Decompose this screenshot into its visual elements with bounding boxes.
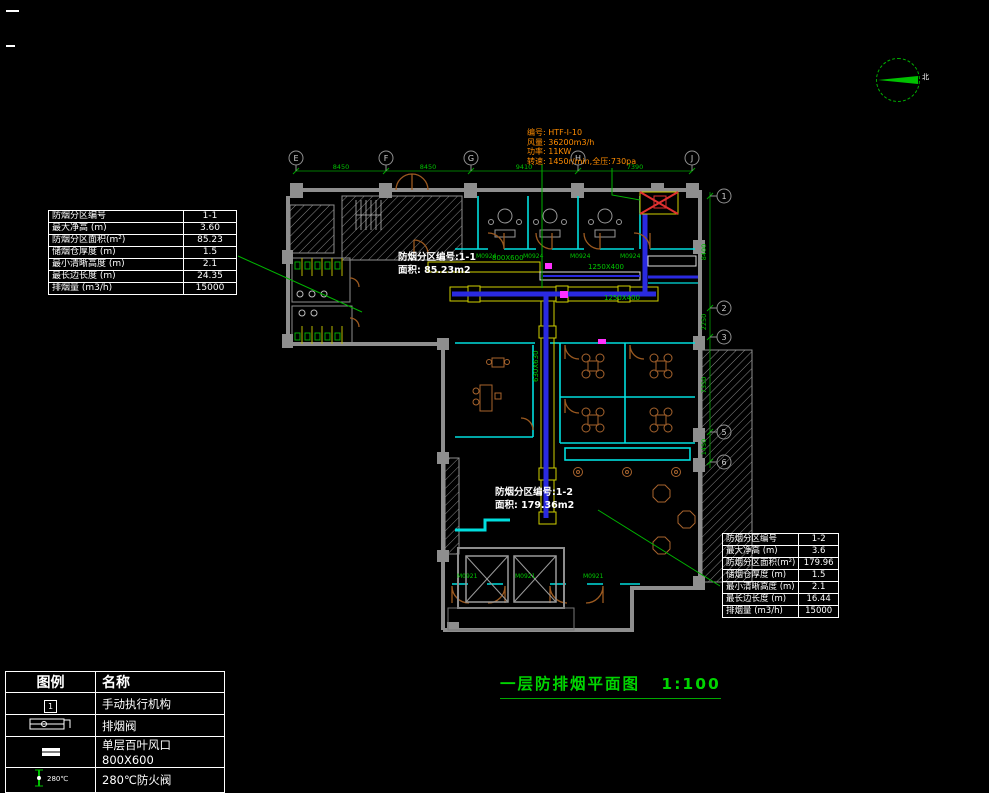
manual-actuator-icon: 1 bbox=[44, 700, 57, 713]
title-scale: 1:100 bbox=[661, 675, 720, 693]
cad-canvas[interactable]: 800X600 1250X400 1250X400 630X630 M0924 … bbox=[0, 0, 989, 770]
cad-viewport[interactable]: { "meta": { "title": "一层防排烟平面图", "scale"… bbox=[0, 0, 989, 770]
fan-power: 功率: 11KW bbox=[527, 147, 636, 157]
grid-top: E F G H J 8450 8450 9410 7390 bbox=[289, 151, 699, 174]
svg-text:8450: 8450 bbox=[333, 163, 350, 171]
table-row: 最长边长度 (m)16.44 bbox=[723, 594, 839, 606]
corner-marks bbox=[6, 11, 19, 46]
table-row: 最长边长度 (m)24.35 bbox=[49, 271, 237, 283]
legend-row: 280℃ 280℃防火阀 bbox=[6, 768, 225, 793]
svg-text:8400: 8400 bbox=[700, 244, 708, 261]
north-arrow-icon bbox=[878, 72, 920, 88]
svg-text:F: F bbox=[384, 154, 389, 163]
svg-text:6: 6 bbox=[721, 458, 726, 467]
svg-text:7350: 7350 bbox=[700, 377, 708, 394]
table-row: 储烟仓厚度 (m)1.5 bbox=[49, 247, 237, 259]
legend-table: 图例 名称 1 手动执行机构 排烟阀 bbox=[5, 671, 225, 793]
table-row: 最小清晰高度 (m)2.1 bbox=[723, 582, 839, 594]
svg-text:G: G bbox=[468, 154, 474, 163]
ktv-furniture bbox=[489, 209, 622, 237]
svg-text:M0924: M0924 bbox=[620, 253, 641, 260]
legend-row: 1 手动执行机构 bbox=[6, 693, 225, 715]
svg-text:J: J bbox=[690, 154, 693, 163]
smoke-exhaust-valve-icon bbox=[28, 717, 74, 731]
smoke-zone-1-2-table: 防烟分区编号1-2 最大净高 (m)3.6 防烟分区面积(m²)179.96 储… bbox=[722, 533, 839, 618]
svg-text:8450: 8450 bbox=[420, 163, 437, 171]
zone-1-1-note: 防烟分区编号:1-1 面积: 85.23m2 bbox=[398, 251, 476, 277]
louver-outlet-icon bbox=[40, 746, 62, 758]
svg-text:M0921: M0921 bbox=[583, 573, 604, 580]
table-row: 储烟仓厚度 (m)1.5 bbox=[723, 570, 839, 582]
smoke-zone-1-1-table: 防烟分区编号1-1 最大净高 (m)3.60 防烟分区面积(m²)85.23 储… bbox=[48, 210, 237, 295]
exhaust-fan-unit bbox=[640, 192, 678, 214]
legend-header-row: 图例 名称 bbox=[6, 672, 225, 693]
legend-header-name: 名称 bbox=[96, 672, 225, 693]
dining-furniture bbox=[473, 354, 695, 554]
legend-row: 单层百叶风口800X600 bbox=[6, 737, 225, 768]
legend-header-symbol: 图例 bbox=[6, 672, 96, 693]
drawing-title: 一层防排烟平面图 1:100 bbox=[500, 672, 721, 699]
svg-text:E: E bbox=[293, 154, 298, 163]
table-row: 最小清晰高度 (m)2.1 bbox=[49, 259, 237, 271]
fan-speed-pressure: 转速: 1450r/min,全压:730pa bbox=[527, 157, 636, 167]
fan-id: 编号: HTF-I-10 bbox=[527, 128, 636, 138]
elevators bbox=[448, 548, 574, 630]
svg-text:280℃: 280℃ bbox=[47, 775, 68, 783]
svg-text:2250: 2250 bbox=[700, 314, 708, 331]
svg-text:M0924: M0924 bbox=[523, 253, 544, 260]
north-label: 北 bbox=[922, 72, 929, 82]
toilet-block-a bbox=[292, 258, 350, 302]
svg-text:1: 1 bbox=[721, 192, 726, 201]
svg-text:1250X400: 1250X400 bbox=[588, 263, 624, 271]
table-row: 防烟分区编号1-1 bbox=[49, 211, 237, 223]
table-row: 最大净高 (m)3.60 bbox=[49, 223, 237, 235]
fan-airflow: 风量: 36200m3/h bbox=[527, 138, 636, 148]
table-row: 排烟量 (m3/h)15000 bbox=[49, 283, 237, 295]
svg-text:800X600: 800X600 bbox=[492, 254, 524, 262]
north-compass: 北 bbox=[876, 58, 920, 102]
svg-text:M0924: M0924 bbox=[476, 253, 497, 260]
zone-1-2-note: 防烟分区编号:1-2 面积: 179.36m2 bbox=[495, 486, 574, 512]
table-row: 防烟分区编号1-2 bbox=[723, 534, 839, 546]
svg-text:5: 5 bbox=[721, 428, 726, 437]
svg-text:M0921: M0921 bbox=[515, 573, 536, 580]
svg-text:2: 2 bbox=[721, 304, 726, 313]
table-row: 防烟分区面积(m²)85.23 bbox=[49, 235, 237, 247]
svg-text:M0924: M0924 bbox=[570, 253, 591, 260]
toilet-block-b bbox=[292, 306, 352, 344]
table-row: 防烟分区面积(m²)179.96 bbox=[723, 558, 839, 570]
legend-row: 排烟阀 bbox=[6, 715, 225, 737]
svg-text:1450: 1450 bbox=[700, 439, 708, 456]
svg-text:1250X400: 1250X400 bbox=[604, 294, 640, 302]
table-row: 最大净高 (m)3.6 bbox=[723, 546, 839, 558]
table-row: 排烟量 (m3/h)15000 bbox=[723, 606, 839, 618]
fan-annotation: 编号: HTF-I-10 风量: 36200m3/h 功率: 11KW 转速: … bbox=[527, 128, 636, 166]
svg-text:3: 3 bbox=[721, 333, 726, 342]
title-text: 一层防排烟平面图 bbox=[500, 675, 640, 693]
svg-text:M0921: M0921 bbox=[457, 573, 478, 580]
duct-labels: 800X600 1250X400 1250X400 630X630 bbox=[492, 254, 640, 382]
svg-text:630X630: 630X630 bbox=[532, 350, 540, 382]
fire-damper-icon: 280℃ bbox=[29, 768, 73, 788]
